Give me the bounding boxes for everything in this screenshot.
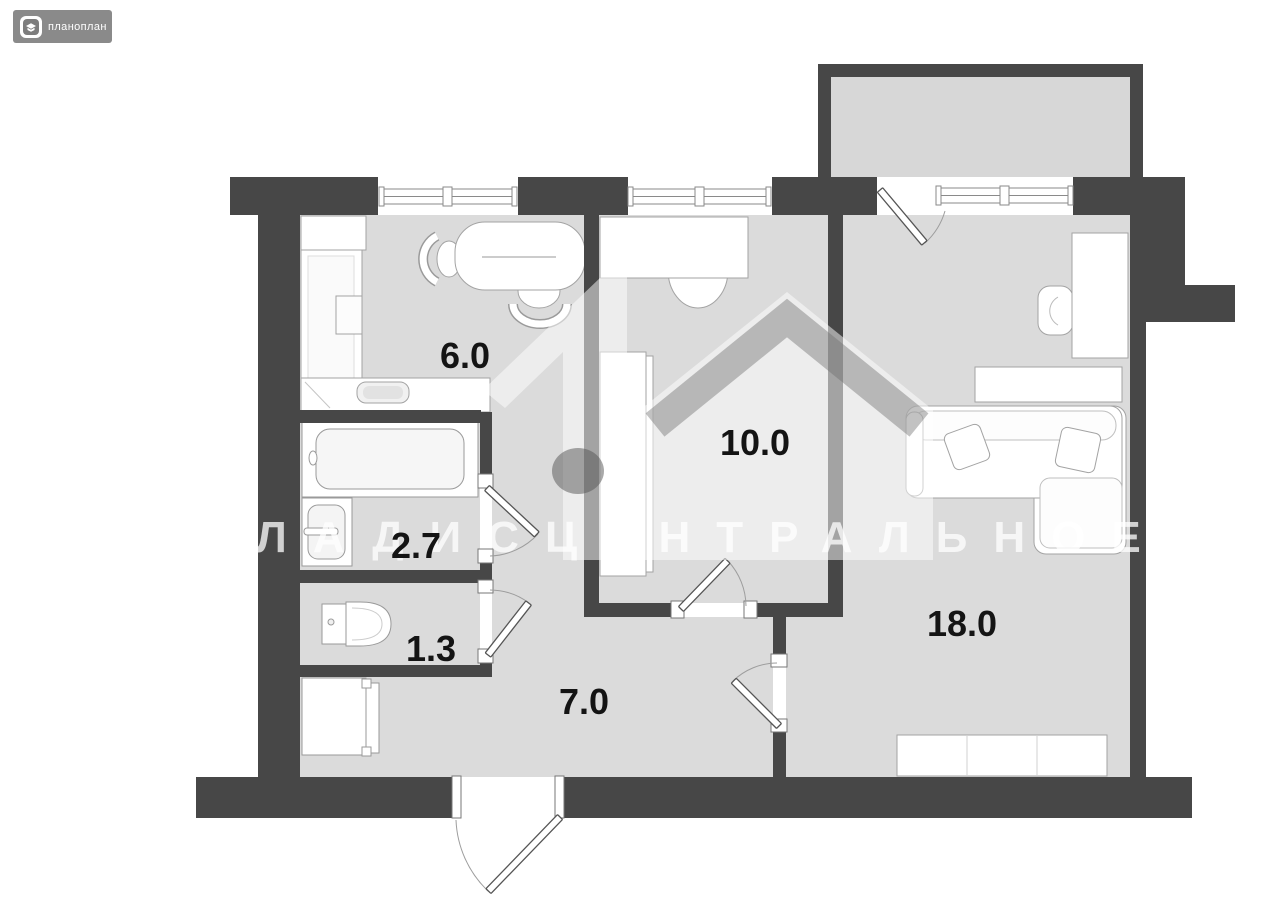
living-desk <box>1072 233 1128 358</box>
balcony-wall-top <box>818 64 1143 77</box>
hall-wardrobe-door <box>366 683 379 753</box>
label-bathroom: 2.7 <box>391 525 441 566</box>
label-living-room: 18.0 <box>927 603 997 644</box>
planoplan-cube-icon <box>20 16 42 38</box>
hall-wardrobe <box>302 678 366 755</box>
hallway-furniture <box>302 678 379 756</box>
planoplan-logo: планоплан <box>13 10 112 43</box>
label-hallway: 7.0 <box>559 681 609 722</box>
counter-appliance <box>336 296 362 334</box>
wall-right-pier <box>1143 285 1235 322</box>
wall-bath-hall <box>480 412 492 476</box>
balcony-wall-right <box>1130 64 1143 177</box>
wardrobe-hinge <box>362 747 371 756</box>
bedroom-desk <box>600 217 748 278</box>
wall-hall-living <box>773 725 786 777</box>
floorplan-screenshot: ВЛАДИСЦЕНТРАЛЬНОЕ 6.0 2.7 1.3 7.0 10.0 1… <box>0 0 1280 904</box>
toilet-button <box>328 619 334 625</box>
living-door-opening <box>773 667 786 719</box>
fridge <box>301 216 366 250</box>
wall-top <box>518 177 628 215</box>
watermark-text: ВЛАДИСЦЕНТРАЛЬНОЕ <box>199 513 1167 562</box>
bathtub-basin <box>316 429 464 489</box>
toilet-bowl <box>346 602 391 646</box>
kitchen-sink-basin <box>363 386 403 399</box>
wall-bottom <box>563 777 1192 818</box>
kitchen-table <box>455 222 585 290</box>
bedroom-door-opening <box>684 603 744 617</box>
sofa-pillow-right <box>1054 426 1101 473</box>
entrance-door-leaf <box>486 815 563 894</box>
floorplan-drawing: ВЛАДИСЦЕНТРАЛЬНОЕ 6.0 2.7 1.3 7.0 10.0 1… <box>0 0 1280 904</box>
watermark-dot <box>552 448 604 494</box>
wardrobe-hinge <box>362 679 371 688</box>
windows <box>379 186 1073 206</box>
wall-shelf <box>975 367 1122 402</box>
bathtub-faucet <box>309 451 317 465</box>
wall-left <box>258 215 300 777</box>
kitchen-window <box>379 187 517 206</box>
label-kitchen: 6.0 <box>440 335 490 376</box>
planoplan-logo-text: планоплан <box>48 21 107 33</box>
living-window <box>936 186 1073 205</box>
wall-kitchen-bath <box>300 410 481 423</box>
toilet-door-opening <box>480 593 492 649</box>
wall-top <box>772 177 877 215</box>
wall-bath-toilet <box>300 570 481 583</box>
balcony-floor <box>831 77 1130 177</box>
tv-cabinet <box>897 735 1107 776</box>
wall-right-corner <box>1130 177 1185 288</box>
wall-bottom <box>196 777 453 818</box>
desk-chair-2 <box>1038 286 1073 335</box>
wall-bedroom-hall <box>584 603 676 617</box>
bedroom-window <box>628 187 771 206</box>
balcony-wall-left <box>818 64 831 177</box>
label-bedroom: 10.0 <box>720 422 790 463</box>
label-toilet: 1.3 <box>406 628 456 669</box>
toilet-tank <box>322 604 346 644</box>
wall-top <box>230 177 378 215</box>
wall-bedroom-hall <box>748 603 843 617</box>
